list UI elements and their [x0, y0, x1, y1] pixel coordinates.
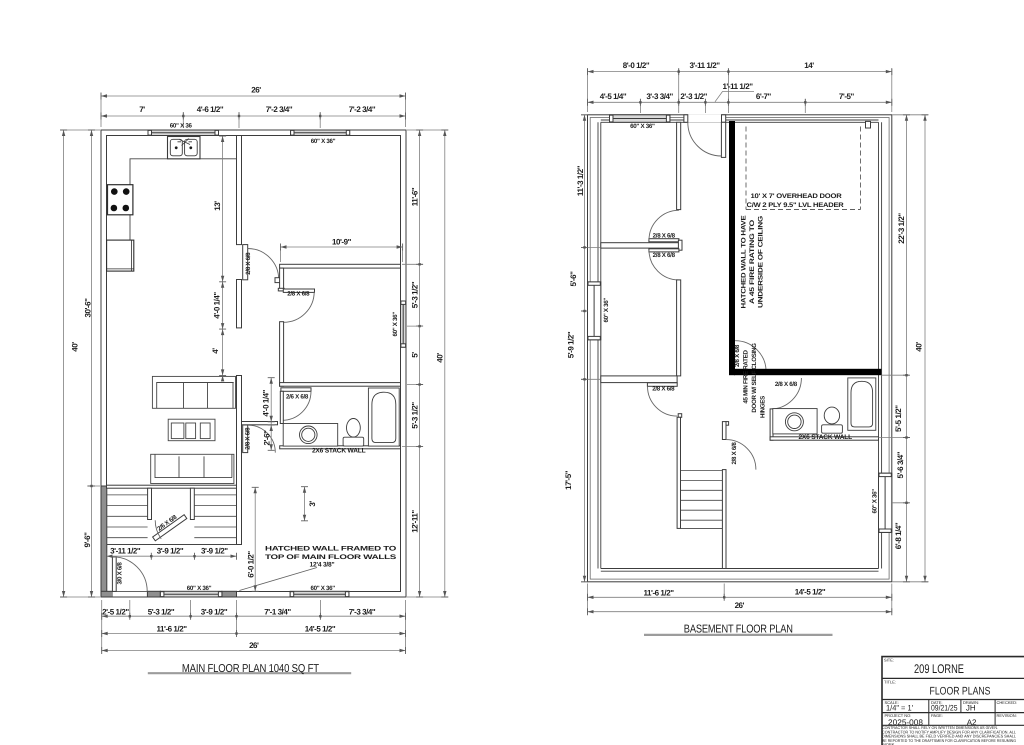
svg-text:2/8 X 6/8: 2/8 X 6/8 — [653, 233, 676, 240]
svg-text:14'-5 1/2": 14'-5 1/2" — [305, 624, 336, 633]
svg-text:TOP OF MAIN FLOOR WALLS: TOP OF MAIN FLOOR WALLS — [265, 554, 397, 561]
svg-text:3'-9 1/2": 3'-9 1/2" — [201, 546, 228, 555]
svg-text:14': 14' — [804, 61, 814, 70]
svg-text:A 45 FIRE RATING TO: A 45 FIRE RATING TO — [749, 220, 756, 304]
svg-text:7'-1 3/4": 7'-1 3/4" — [264, 608, 291, 617]
svg-text:3'-3 3/4": 3'-3 3/4" — [646, 92, 673, 101]
svg-text:7'-5": 7'-5" — [839, 92, 855, 101]
svg-text:26': 26' — [735, 601, 745, 610]
svg-text:60" X 36": 60" X 36" — [871, 489, 878, 514]
svg-text:2'-3 1/2": 2'-3 1/2" — [680, 92, 707, 101]
svg-text:MAIN FLOOR PLAN 1040 SQ FT: MAIN FLOOR PLAN 1040 SQ FT — [182, 663, 319, 675]
svg-text:BASEMENT FLOOR PLAN: BASEMENT FLOOR PLAN — [684, 623, 793, 635]
svg-text:6'-7": 6'-7" — [756, 92, 772, 101]
svg-text:SITE:: SITE: — [884, 658, 894, 663]
svg-text:45 MIN FIRE RATED: 45 MIN FIRE RATED — [742, 350, 749, 404]
svg-text:3'-11 1/2": 3'-11 1/2" — [110, 546, 141, 555]
svg-text:4'-0 1/4": 4'-0 1/4" — [212, 292, 221, 319]
svg-text:3'-11 1/2": 3'-11 1/2" — [689, 61, 720, 70]
svg-text:7'-2 3/4": 7'-2 3/4" — [266, 105, 293, 114]
svg-text:7'-2 3/4": 7'-2 3/4" — [349, 105, 376, 114]
svg-text:5'-3 1/2": 5'-3 1/2" — [148, 608, 175, 617]
svg-text:5'-6": 5'-6" — [569, 271, 578, 287]
svg-text:5': 5' — [411, 352, 420, 358]
svg-text:1'-11 1/2": 1'-11 1/2" — [722, 82, 753, 91]
svg-text:4': 4' — [211, 348, 220, 354]
svg-text:60" X 36: 60" X 36 — [170, 122, 193, 129]
svg-text:60" X 36": 60" X 36" — [630, 123, 655, 130]
svg-text:4'-5 1/4": 4'-5 1/4" — [600, 92, 627, 101]
svg-text:3/0 X 6/8: 3/0 X 6/8 — [117, 562, 124, 585]
svg-text:PAGE:: PAGE: — [931, 713, 943, 718]
svg-text:4'-0 1/4": 4'-0 1/4" — [261, 389, 270, 416]
svg-text:30'-6": 30'-6" — [84, 298, 93, 318]
svg-text:DOOR W/ SELF CLOSING: DOOR W/ SELF CLOSING — [751, 343, 758, 413]
svg-text:7'-3 3/4": 7'-3 3/4" — [349, 608, 376, 617]
svg-text:2/8 X 6/8: 2/8 X 6/8 — [287, 290, 310, 297]
svg-text:BE REPORTED TO THE DRAFTSMEN F: BE REPORTED TO THE DRAFTSMEN FOR CLARIFI… — [882, 738, 1016, 743]
svg-text:209 LORNE: 209 LORNE — [914, 662, 964, 676]
svg-text:26': 26' — [251, 85, 261, 94]
svg-text:22'-3 1/2": 22'-3 1/2" — [897, 213, 906, 244]
svg-text:3': 3' — [308, 501, 317, 507]
svg-text:HATCHED WALL TO HAVE: HATCHED WALL TO HAVE — [740, 215, 747, 309]
svg-text:PROJECT NO:: PROJECT NO: — [885, 713, 912, 718]
svg-text:2/8 X 6/8: 2/8 X 6/8 — [244, 427, 251, 450]
svg-text:2'-6": 2'-6" — [263, 430, 272, 446]
svg-text:11'-3 1/2": 11'-3 1/2" — [576, 165, 585, 196]
svg-text:40': 40' — [436, 353, 445, 363]
svg-text:2/8 X 6/8: 2/8 X 6/8 — [652, 386, 675, 393]
svg-text:9'-6": 9'-6" — [83, 532, 92, 548]
svg-text:2'-5 1/2": 2'-5 1/2" — [102, 608, 129, 617]
svg-text:UNDERSIDE OF CEILING: UNDERSIDE OF CEILING — [757, 216, 764, 308]
svg-text:60" X 36": 60" X 36" — [187, 585, 212, 592]
svg-text:09/21/25: 09/21/25 — [931, 704, 958, 713]
svg-text:6'-0 1/2": 6'-0 1/2" — [246, 551, 255, 578]
svg-text:4'-6 1/2": 4'-6 1/2" — [197, 105, 224, 114]
svg-text:17'-5": 17'-5" — [564, 470, 573, 490]
svg-text:40': 40' — [914, 342, 923, 352]
svg-text:5'-3 1/2": 5'-3 1/2" — [411, 281, 420, 308]
svg-text:HINGES: HINGES — [759, 396, 766, 418]
svg-text:2/8 X 6/8: 2/8 X 6/8 — [731, 442, 738, 465]
svg-text:3'-9 1/2": 3'-9 1/2" — [201, 608, 228, 617]
svg-text:14'-5 1/2": 14'-5 1/2" — [795, 587, 826, 596]
svg-text:60" X 36": 60" X 36" — [311, 138, 336, 145]
svg-text:5'-9 1/2": 5'-9 1/2" — [567, 331, 576, 358]
svg-text:C/W 2 PLY 9.5" LVL HEADER: C/W 2 PLY 9.5" LVL HEADER — [747, 202, 844, 209]
svg-text:60" X 36": 60" X 36" — [603, 298, 610, 323]
svg-text:TITLE:: TITLE: — [884, 680, 896, 685]
svg-text:1/4" = 1': 1/4" = 1' — [886, 704, 913, 713]
svg-text:CHECKED:: CHECKED: — [997, 700, 1018, 705]
svg-text:11'-6": 11'-6" — [411, 187, 420, 206]
svg-text:HATCHED WALL FRAMED TO: HATCHED WALL FRAMED TO — [265, 545, 396, 552]
svg-text:7': 7' — [139, 105, 145, 114]
svg-text:11'-6 1/2": 11'-6 1/2" — [156, 624, 187, 633]
svg-text:12'-11": 12'-11" — [411, 510, 420, 533]
svg-text:60" X 36": 60" X 36" — [392, 312, 399, 337]
svg-text:2/8 X 6/8: 2/8 X 6/8 — [245, 252, 252, 275]
svg-text:13': 13' — [213, 201, 222, 211]
svg-text:40': 40' — [71, 342, 80, 352]
svg-text:26': 26' — [249, 641, 259, 650]
svg-text:2/8 X 6/8: 2/8 X 6/8 — [775, 381, 798, 388]
svg-text:5'-6 3/4": 5'-6 3/4" — [896, 451, 905, 478]
svg-text:60" X 36": 60" X 36" — [310, 585, 335, 592]
svg-text:2X6 STACK WALL: 2X6 STACK WALL — [312, 447, 366, 454]
svg-text:FLOOR PLANS: FLOOR PLANS — [930, 686, 991, 698]
svg-text:3'-9 1/2": 3'-9 1/2" — [157, 546, 184, 555]
svg-text:2/8 X 6/8: 2/8 X 6/8 — [734, 344, 741, 367]
svg-text:12'4 3/8": 12'4 3/8" — [310, 561, 335, 568]
svg-text:10' X 7' OVERHEAD DOOR: 10' X 7' OVERHEAD DOOR — [751, 193, 842, 200]
svg-text:2/8 X 6/8: 2/8 X 6/8 — [653, 252, 676, 259]
svg-text:2/6 X 6/8: 2/6 X 6/8 — [286, 393, 309, 400]
svg-text:JH: JH — [966, 703, 976, 712]
svg-text:5'-5 1/2": 5'-5 1/2" — [894, 405, 903, 432]
svg-text:2X6 STACK WALL: 2X6 STACK WALL — [798, 434, 852, 441]
svg-text:11'-6 1/2": 11'-6 1/2" — [643, 589, 674, 598]
svg-text:6'-8 1/4": 6'-8 1/4" — [894, 522, 903, 549]
svg-text:5'-3 1/2": 5'-3 1/2" — [411, 402, 420, 429]
svg-text:REVISION:: REVISION: — [997, 713, 1017, 718]
svg-text:10'-9": 10'-9" — [332, 238, 352, 247]
svg-text:8'-0 1/2": 8'-0 1/2" — [623, 61, 650, 70]
